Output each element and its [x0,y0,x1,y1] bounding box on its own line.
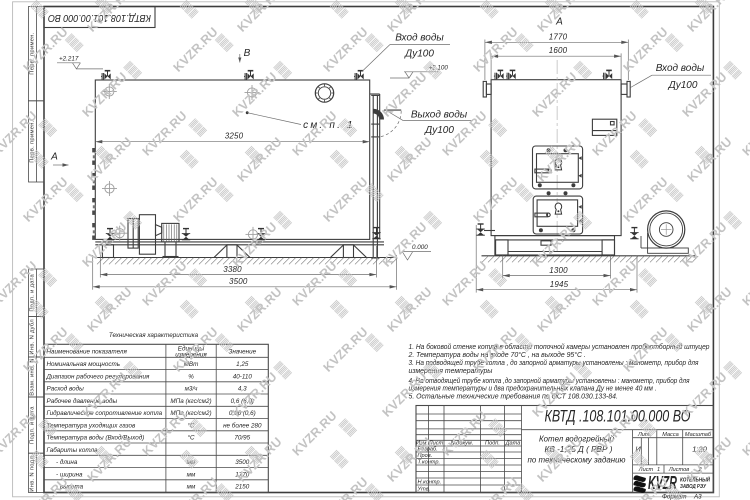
svg-text:Номинальная мощность: Номинальная мощность [47,361,121,368]
svg-text:Ду100: Ду100 [424,125,454,136]
svg-text:Вход воды: Вход воды [395,33,444,44]
svg-text:по техническому заданию: по техническому заданию [528,454,627,464]
svg-text:м3/ч: м3/ч [185,386,199,393]
svg-text:Подп.: Подп. [485,440,500,446]
svg-text:МПа (кгс/см2): МПа (кгс/см2) [170,398,211,405]
svg-text:мм: мм [187,471,196,478]
svg-text:- длина: - длина [56,458,78,466]
svg-text:Выход воды: Выход воды [411,110,468,121]
svg-text:Расход воды: Расход воды [47,385,85,393]
svg-text:%: % [188,373,194,380]
svg-text:Техническая характеристика: Техническая характеристика [109,332,199,339]
svg-text:0.000: 0.000 [412,244,428,251]
svg-text:В: В [244,48,251,59]
svg-text:Гидравлическое сопротивление к: Гидравлическое сопротивление котла [47,409,163,417]
svg-text:Масштаб: Масштаб [685,432,712,438]
svg-text:Утв.: Утв. [417,487,431,493]
svg-text:Дата: Дата [505,440,521,446]
svg-text:Вход воды: Вход воды [656,63,705,74]
svg-text:Температура уходящих газов: Температура уходящих газов [47,421,136,429]
svg-text:Габариты котла: Габариты котла [47,446,99,454]
svg-text:Н.контр.: Н.контр. [418,480,442,486]
svg-text:Т.контр.: Т.контр. [418,459,441,465]
svg-text:1300: 1300 [549,266,568,275]
svg-text:Инв. N подл.: Инв. N подл. [30,454,36,492]
svg-text:не более 280: не более 280 [223,421,262,429]
svg-text:4. На отводящей трубе котла ,: 4. На отводящей трубе котла ,до запорной… [409,377,690,385]
svg-text:Ду100: Ду100 [668,80,698,91]
svg-text:4,3: 4,3 [238,386,247,393]
svg-text:5. Остальные технические треб: 5. Остальные технические требования по О… [409,392,619,400]
svg-text:Значение: Значение [228,349,256,356]
svg-text:70/95: 70/95 [234,435,250,442]
svg-text:А: А [50,152,58,163]
svg-text:°С: °С [187,434,195,442]
svg-text:Лит.: Лит. [637,432,651,438]
svg-text:Формат: Формат [662,493,687,500]
svg-text:3250: 3250 [225,132,244,141]
svg-text:1945: 1945 [550,280,569,289]
svg-text:А3: А3 [693,493,702,500]
svg-text:Инв. N дубл: Инв. N дубл [30,319,36,355]
svg-text:Наименование показателя: Наименование показателя [47,349,128,356]
svg-text:+2.217: +2.217 [59,56,79,63]
svg-text:1770: 1770 [549,32,568,41]
svg-text:2150: 2150 [234,484,250,491]
svg-text:Масса: Масса [662,432,679,438]
svg-text:1. На боковой стенке котла в: 1. На боковой стенке котла в области топ… [409,343,710,351]
svg-text:3500: 3500 [229,277,248,286]
svg-text:3. На подводящей трубе котла: 3. На подводящей трубе котла , до запорн… [409,359,699,367]
svg-text:измерения температуры и два пр: измерения температуры и два предохраните… [409,385,657,393]
svg-text:40-110: 40-110 [233,373,253,380]
svg-text:1,25: 1,25 [236,361,249,368]
svg-text:1600: 1600 [549,46,568,55]
svg-text:Ду100: Ду100 [404,49,434,60]
svg-text:мм: мм [187,484,196,491]
